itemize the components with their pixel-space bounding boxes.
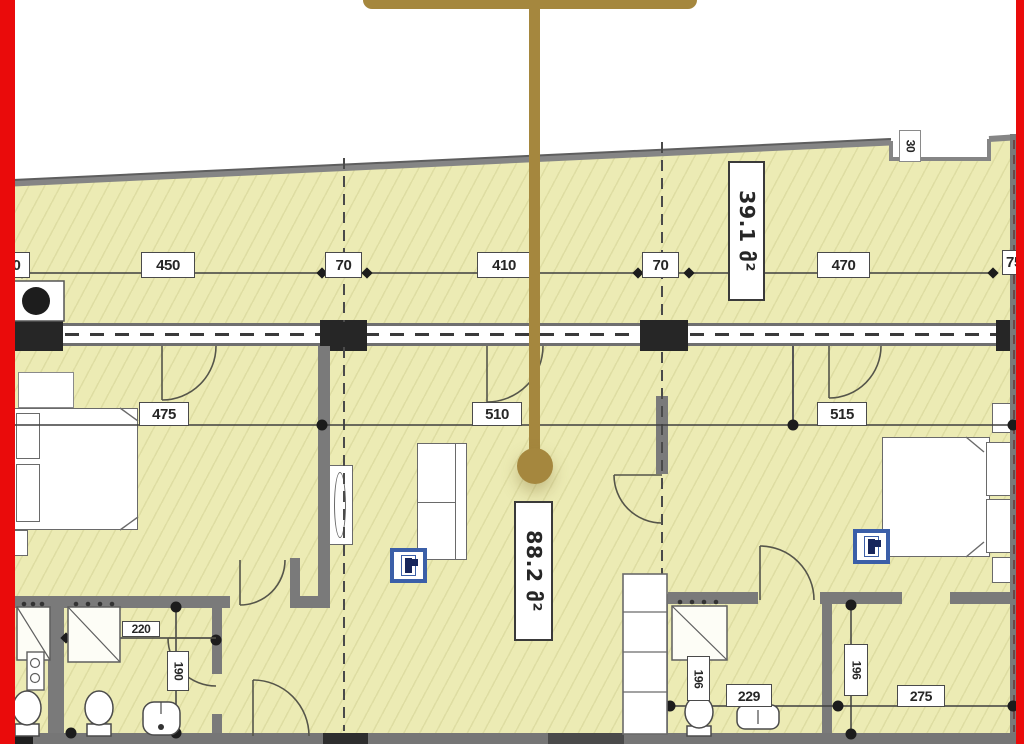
toilets — [13, 691, 713, 736]
dim-label-70b: 70 — [642, 252, 679, 278]
floor-plan: 0 450 70 410 70 470 75 475 510 515 220 1… — [0, 0, 1024, 744]
wall-section-marker — [14, 281, 64, 321]
location-pin-icon[interactable] — [517, 448, 553, 484]
shower-right — [672, 600, 727, 660]
shower-left-large — [68, 602, 120, 662]
sinks — [143, 702, 779, 735]
dim-label-196-left: 196 — [687, 656, 710, 701]
dim-label-470: 470 — [817, 252, 870, 278]
dim-label-410: 410 — [477, 252, 531, 278]
area-label-main-room: 88.2 მ² — [514, 501, 553, 641]
kitchen-cabinets — [623, 574, 667, 734]
outer-wall — [13, 134, 1020, 744]
dim-label-275: 275 — [897, 685, 945, 707]
dim-label-229: 229 — [726, 684, 772, 707]
dim-label-70a: 70 — [325, 252, 362, 278]
left-red-border — [0, 0, 15, 744]
dim-label-30: 30 — [899, 130, 921, 162]
dim-label-220: 220 — [122, 621, 160, 637]
dimension-arrows — [4, 267, 998, 643]
dim-label-196-right: 196 — [844, 644, 868, 696]
shower-left-small — [17, 602, 50, 660]
right-red-border — [1016, 0, 1024, 744]
dim-label-515: 515 — [817, 402, 867, 426]
dim-label-475: 475 — [139, 402, 189, 426]
dim-label-510: 510 — [472, 402, 522, 426]
area-label-top-room: 39.1 მ² — [728, 161, 765, 301]
dashed-partition-lines — [344, 142, 662, 731]
dim-label-450: 450 — [141, 252, 195, 278]
dim-label-190: 190 — [167, 651, 189, 691]
callout-stem — [529, 6, 540, 452]
washer — [27, 652, 44, 690]
